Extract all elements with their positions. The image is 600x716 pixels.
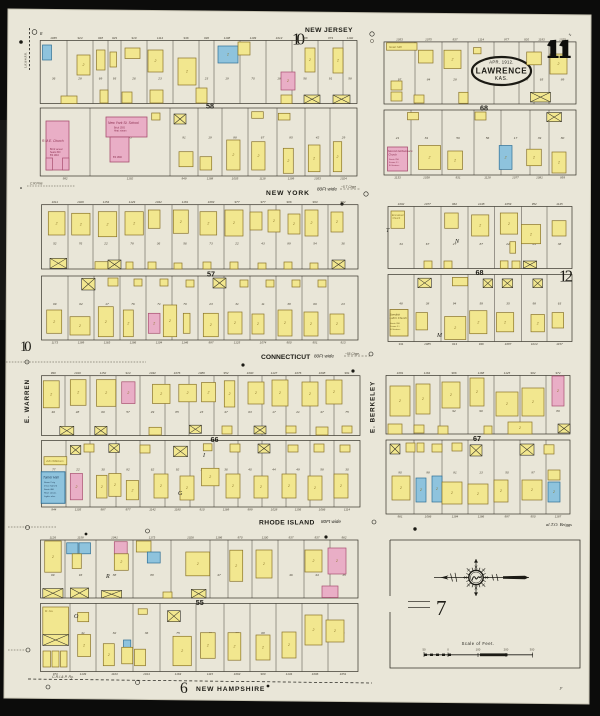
svg-text:1014: 1014 [143,672,150,676]
svg-text:1192: 1192 [347,36,354,40]
svg-text:1092: 1092 [398,202,405,206]
svg-text:2: 2 [292,222,295,226]
svg-text:1066: 1066 [425,514,432,518]
svg-text:36: 36 [145,631,149,635]
svg-text:2: 2 [185,486,188,490]
svg-text:1051: 1051 [340,672,347,676]
svg-text:Seats 250: Seats 250 [389,158,400,161]
svg-text:Stone 2 sty: Stone 2 sty [44,481,56,484]
svg-text:1104: 1104 [156,340,163,344]
svg-text:62: 62 [151,467,155,471]
svg-text:2: 2 [312,559,315,563]
svg-text:29: 29 [341,136,346,140]
svg-text:2: 2 [332,390,335,394]
svg-text:1053: 1053 [314,176,321,180]
svg-text:81: 81 [425,136,429,140]
svg-text:2: 2 [310,221,313,225]
svg-text:2: 2 [398,399,401,403]
svg-text:91: 91 [329,77,333,81]
svg-text:944: 944 [51,507,56,511]
svg-text:1145: 1145 [556,202,563,206]
svg-text:87: 87 [479,242,483,246]
svg-text:Seats 200: Seats 200 [390,322,401,325]
svg-text:2: 2 [154,59,157,63]
svg-text:1024: 1024 [340,176,347,180]
svg-text:1076: 1076 [295,371,302,375]
svg-text:85: 85 [175,410,179,414]
svg-text:R.M.E. Church: R.M.E. Church [42,139,64,143]
svg-text:2: 2 [278,391,281,395]
svg-text:937: 937 [314,536,319,540]
svg-text:36: 36 [52,77,56,81]
svg-text:98: 98 [532,302,536,306]
svg-text:89: 89 [561,77,565,81]
svg-text:991: 991 [344,371,349,375]
svg-text:911: 911 [399,342,404,346]
svg-text:38: 38 [287,302,291,306]
svg-text:77: 77 [52,467,56,471]
svg-text:930: 930 [204,36,209,40]
svg-text:69: 69 [53,302,57,306]
svg-text:47: 47 [217,573,221,577]
svg-text:1173: 1173 [52,340,59,344]
svg-text:300: 300 [530,648,535,652]
svg-text:57: 57 [207,270,215,279]
svg-text:2: 2 [399,486,402,490]
svg-text:2: 2 [79,222,82,226]
svg-text:11: 11 [261,302,264,306]
svg-text:1193: 1193 [538,37,545,41]
svg-text:2: 2 [499,489,502,493]
svg-text:M. Jos.: M. Jos. [45,609,54,613]
svg-text:93: 93 [79,573,83,577]
svg-text:1028: 1028 [271,507,278,511]
svg-text:2: 2 [126,391,129,395]
svg-text:91: 91 [182,136,186,140]
svg-text:B'lt 1890: B'lt 1890 [113,156,123,159]
svg-text:43: 43 [261,242,265,246]
svg-text:2: 2 [286,79,289,83]
svg-text:997: 997 [208,340,213,344]
svg-text:1184: 1184 [452,514,459,518]
svg-text:23: 23 [204,77,209,81]
svg-text:80: 80 [561,136,565,140]
svg-text:2: 2 [55,222,58,226]
svg-text:49: 49 [151,410,155,414]
svg-text:2: 2 [207,390,210,394]
svg-text:2: 2 [233,321,236,325]
svg-text:46: 46 [51,410,55,414]
svg-text:58: 58 [348,77,352,81]
svg-text:1098: 1098 [319,371,326,375]
svg-text:2: 2 [232,645,235,649]
svg-text:30: 30 [101,467,105,471]
svg-text:1163: 1163 [175,672,182,676]
svg-text:2: 2 [168,319,171,323]
svg-text:84: 84 [427,77,431,81]
svg-text:946: 946 [479,342,484,346]
svg-text:962: 962 [341,536,346,540]
svg-text:47: 47 [224,410,228,414]
svg-text:2: 2 [119,560,122,564]
svg-text:54: 54 [313,242,317,246]
svg-text:2: 2 [287,643,290,647]
svg-text:993: 993 [312,200,317,204]
svg-text:2: 2 [335,220,338,224]
svg-text:36: 36 [157,242,161,246]
svg-text:80Ft wide: 80Ft wide [317,187,337,192]
svg-text:2: 2 [262,562,265,566]
svg-text:1157: 1157 [556,342,563,346]
svg-text:2: 2 [130,488,133,492]
svg-text:2: 2 [333,629,336,633]
svg-text:2: 2 [336,155,339,159]
svg-text:2: 2 [261,646,264,650]
svg-text:2: 2 [308,392,311,396]
svg-text:1164: 1164 [424,371,431,375]
svg-text:APR. 1912.: APR. 1912. [489,60,513,65]
svg-text:21: 21 [295,410,300,414]
svg-text:26: 26 [131,77,136,81]
svg-text:88: 88 [150,573,154,577]
svg-text:39: 39 [538,136,542,140]
svg-text:76: 76 [131,302,135,306]
svg-text:950: 950 [530,514,535,518]
svg-text:1013: 1013 [276,36,283,40]
svg-text:999: 999 [247,507,252,511]
svg-text:RHODE ISLAND: RHODE ISLAND [259,520,315,527]
svg-text:2: 2 [256,154,259,158]
svg-text:973: 973 [53,672,58,676]
svg-text:2: 2 [308,58,311,62]
svg-text:952: 952 [532,202,537,206]
svg-text:57: 57 [126,410,130,414]
svg-text:1074: 1074 [260,340,267,344]
svg-text:2: 2 [186,391,189,395]
svg-text:2: 2 [529,232,532,236]
svg-text:22: 22 [234,242,239,246]
svg-text:Lights: elec.: Lights: elec. [44,495,56,498]
svg-text:2: 2 [504,156,507,160]
svg-text:23: 23 [340,302,345,306]
svg-text:98: 98 [426,470,430,474]
svg-text:10: 10 [20,339,32,355]
svg-text:42: 42 [316,136,320,140]
svg-text:92: 92 [452,409,456,413]
svg-text:977: 977 [504,37,509,41]
svg-text:88: 88 [113,573,117,577]
svg-text:28: 28 [77,77,82,81]
svg-text:1199: 1199 [250,36,257,40]
svg-text:44: 44 [272,467,276,471]
svg-text:NEW YORK: NEW YORK [266,190,310,197]
svg-text:900: 900 [286,340,291,344]
svg-text:44: 44 [315,573,319,577]
svg-text:23: 23 [157,77,162,81]
svg-text:937: 937 [452,37,457,41]
svg-text:1038: 1038 [423,175,430,179]
svg-text:56: 56 [486,136,490,140]
svg-text:68: 68 [261,631,265,635]
svg-text:71: 71 [157,302,161,306]
svg-text:951: 951 [312,340,317,344]
svg-text:1075: 1075 [425,37,432,41]
svg-text:1085: 1085 [424,342,431,346]
svg-text:34: 34 [399,242,403,246]
svg-text:68: 68 [476,268,484,277]
svg-text:2: 2 [518,426,521,430]
svg-text:1173: 1173 [149,536,156,540]
svg-text:2: 2 [180,649,183,653]
svg-text:2: 2 [453,158,456,162]
svg-text:946: 946 [183,36,188,40]
svg-text:2: 2 [421,397,424,401]
svg-text:19: 19 [208,136,212,140]
svg-text:1077: 1077 [424,202,431,206]
svg-text:1053: 1053 [396,37,403,41]
svg-text:1026: 1026 [187,536,194,540]
svg-text:2: 2 [104,391,107,395]
svg-text:2: 2 [536,321,539,325]
svg-text:90: 90 [479,409,483,413]
svg-text:2: 2 [232,221,235,225]
svg-text:B'lt 1910: B'lt 1910 [50,154,60,157]
svg-text:6: 6 [180,680,188,697]
svg-text:81: 81 [453,470,457,474]
svg-text:1063: 1063 [234,672,241,676]
svg-text:2: 2 [476,492,479,496]
svg-text:2: 2 [206,644,209,648]
svg-text:1180: 1180 [174,507,181,511]
svg-text:1128: 1128 [484,175,491,179]
svg-text:1181: 1181 [182,200,189,204]
svg-text:902: 902 [340,200,345,204]
svg-text:L.K.&W.R.R.: L.K.&W.R.R. [24,52,28,69]
svg-text:17: 17 [105,302,109,306]
svg-text:968: 968 [302,36,307,40]
svg-text:1134: 1134 [286,672,293,676]
svg-text:952: 952 [223,371,228,375]
svg-text:1065: 1065 [50,36,57,40]
svg-text:50: 50 [505,470,509,474]
svg-text:36: 36 [224,467,228,471]
svg-text:69: 69 [99,77,103,81]
svg-text:28: 28 [452,77,457,81]
svg-text:2: 2 [76,391,79,395]
svg-text:2: 2 [100,485,103,489]
svg-text:2: 2 [254,391,257,395]
svg-text:2: 2 [557,62,560,66]
svg-text:NEW JERSEY: NEW JERSEY [305,27,353,34]
svg-text:1118: 1118 [259,176,266,180]
svg-text:89: 89 [556,409,560,413]
svg-text:70: 70 [183,302,187,306]
svg-text:48: 48 [76,410,80,414]
svg-text:1114: 1114 [344,507,351,511]
svg-text:LAWRENCE: LAWRENCE [476,67,528,76]
svg-text:Grain Mill: Grain Mill [389,45,402,49]
svg-text:66: 66 [211,435,219,444]
svg-text:2: 2 [126,322,129,326]
svg-text:82: 82 [126,467,130,471]
svg-text:2: 2 [256,322,259,326]
svg-text:93: 93 [113,77,117,81]
svg-text:60: 60 [101,410,105,414]
svg-text:2: 2 [556,389,559,393]
svg-text:2: 2 [450,491,453,495]
svg-text:920: 920 [524,37,529,41]
svg-text:931: 931 [455,175,460,179]
svg-text:914: 914 [125,371,130,375]
svg-text:987: 987 [100,507,105,511]
svg-text:1154: 1154 [103,200,110,204]
svg-text:2: 2 [312,157,315,161]
svg-text:92: 92 [176,467,180,471]
svg-text:1129: 1129 [129,200,136,204]
svg-text:2: 2 [196,562,199,566]
svg-text:2: 2 [335,559,338,563]
svg-text:924: 924 [77,36,82,40]
svg-text:2: 2 [309,322,312,326]
svg-text:1199: 1199 [288,176,295,180]
svg-text:1139: 1139 [80,672,87,676]
svg-text:1114: 1114 [478,37,485,41]
svg-text:961: 961 [397,514,402,518]
svg-text:KAS.: KAS. [495,76,508,82]
svg-text:13: 13 [479,470,483,474]
svg-text:D'nce hall 2'd: D'nce hall 2'd [44,486,58,488]
svg-text:2: 2 [51,555,54,559]
svg-text:73: 73 [209,242,213,246]
svg-text:82: 82 [113,631,117,635]
svg-text:1000: 1000 [247,371,254,375]
svg-text:2: 2 [531,400,534,404]
svg-text:1103: 1103 [111,672,118,676]
svg-text:2: 2 [475,390,478,394]
svg-text:65: 65 [540,77,544,81]
svg-text:1086: 1086 [198,371,205,375]
svg-text:90: 90 [398,470,402,474]
svg-text:Brick veneer: Brick veneer [50,148,63,151]
svg-text:Church: Church [389,153,398,157]
svg-text:910: 910 [199,507,204,511]
svg-text:2: 2 [234,564,237,568]
svg-text:1198: 1198 [224,36,231,40]
svg-text:2: 2 [451,58,454,62]
svg-text:68: 68 [480,104,488,113]
svg-text:992: 992 [63,176,68,180]
svg-text:1147: 1147 [271,371,278,375]
svg-text:Seats 300: Seats 300 [50,151,61,154]
svg-text:80Ft wide: 80Ft wide [321,519,341,524]
svg-text:58: 58 [479,302,483,306]
svg-text:O: O [74,614,79,620]
svg-text:1146: 1146 [182,340,189,344]
svg-text:2: 2 [449,393,452,397]
svg-text:1186: 1186 [478,514,485,518]
svg-text:919: 919 [131,36,136,40]
svg-text:2: 2 [226,53,229,57]
svg-text:22: 22 [505,242,510,246]
svg-text:47: 47 [320,410,324,414]
svg-text:2: 2 [185,70,188,74]
svg-text:49: 49 [296,467,300,471]
svg-text:76: 76 [79,242,83,246]
svg-text:al.T.O. Briggs: al.T.O. Briggs [546,522,572,527]
svg-text:977: 977 [125,507,130,511]
svg-text:937: 937 [288,536,293,540]
svg-text:1014: 1014 [531,342,538,346]
svg-text:1189: 1189 [78,340,85,344]
svg-text:1011: 1011 [52,200,59,204]
svg-text:977: 977 [260,200,265,204]
svg-text:2: 2 [82,63,85,67]
svg-text:1187: 1187 [555,514,562,518]
svg-text:2: 2 [209,323,212,327]
svg-text:R: R [39,31,43,36]
svg-text:973: 973 [328,36,333,40]
svg-text:R: R [105,574,110,580]
svg-text:2: 2 [476,320,479,324]
svg-text:2: 2 [335,322,338,326]
svg-text:970: 970 [237,536,242,540]
svg-text:69: 69 [313,302,317,306]
svg-text:Scale of Feet.: Scale of Feet. [462,641,495,646]
svg-text:906: 906 [286,200,291,204]
svg-text:909: 909 [260,672,265,676]
svg-text:2: 2 [231,484,234,488]
svg-text:2: 2 [179,220,182,224]
svg-text:2: 2 [453,326,456,330]
svg-text:2: 2 [283,321,286,325]
svg-text:997: 997 [504,514,509,518]
svg-text:80Ft wide: 80Ft wide [314,354,334,359]
svg-text:58: 58 [320,467,324,471]
svg-text:2: 2 [503,320,506,324]
svg-text:1096: 1096 [312,672,319,676]
svg-text:21: 21 [395,136,400,140]
svg-text:2: 2 [228,392,231,396]
svg-text:1081: 1081 [536,175,543,179]
svg-text:56: 56 [303,77,307,81]
svg-text:1138: 1138 [478,202,485,206]
svg-text:Seats 400: Seats 400 [44,488,55,491]
svg-text:966: 966 [451,371,456,375]
svg-text:2: 2 [106,222,109,226]
svg-text:1059: 1059 [505,202,512,206]
svg-text:E. WARREN: E. WARREN [24,379,31,423]
svg-text:2: 2 [159,484,162,488]
svg-text:1042: 1042 [155,200,162,204]
svg-text:1125: 1125 [234,340,241,344]
svg-text:1114: 1114 [157,36,164,40]
svg-text:2: 2 [49,393,52,397]
svg-text:2: 2 [74,485,77,489]
svg-text:1066: 1066 [319,507,326,511]
svg-text:G: G [178,491,183,497]
svg-text:948: 948 [98,36,103,40]
svg-text:Heat: stoves: Heat: stoves [44,492,57,495]
svg-text:2: 2 [52,320,55,324]
svg-text:1100: 1100 [262,536,269,540]
svg-text:36: 36 [341,242,345,246]
svg-text:2: 2 [312,628,315,632]
svg-text:85: 85 [289,136,293,140]
svg-text:75: 75 [176,631,180,635]
svg-text:67: 67 [261,136,265,140]
svg-text:59: 59 [456,136,460,140]
svg-text:56: 56 [183,242,187,246]
